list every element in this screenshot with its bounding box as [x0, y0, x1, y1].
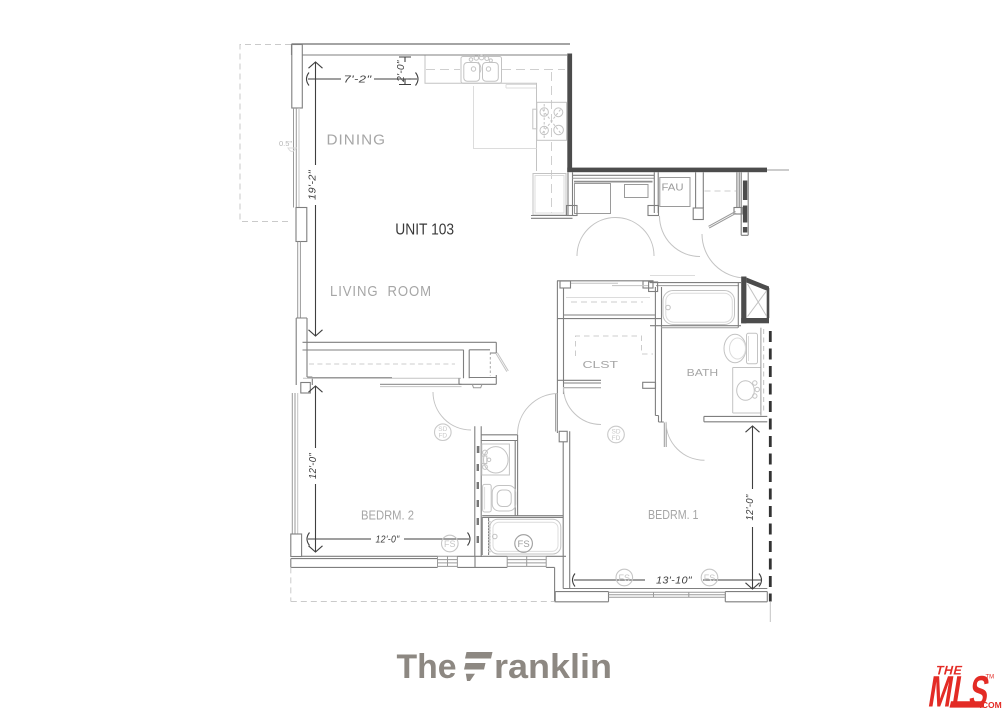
svg-text:.COM: .COM [980, 700, 1002, 710]
svg-text:FAU: FAU [662, 183, 684, 194]
svg-text:UNIT 103: UNIT 103 [395, 221, 454, 238]
svg-text:2'-0": 2'-0" [396, 60, 407, 83]
svg-text:CLST: CLST [583, 360, 619, 371]
svg-text:TM: TM [986, 675, 995, 681]
svg-text:13'-10": 13'-10" [656, 576, 692, 587]
svg-text:12'-0": 12'-0" [745, 494, 756, 520]
svg-text:FS: FS [619, 573, 631, 583]
svg-text:FD: FD [438, 433, 447, 440]
svg-text:The: The [397, 648, 457, 686]
svg-text:DINING: DINING [327, 132, 387, 149]
svg-text:BATH: BATH [687, 368, 719, 379]
svg-text:BEDRM. 2: BEDRM. 2 [361, 509, 414, 523]
svg-text:FS: FS [704, 573, 716, 583]
svg-text:19'-2": 19'-2" [308, 170, 319, 200]
svg-text:FS: FS [444, 539, 456, 549]
svg-text:FD: FD [612, 435, 621, 442]
svg-text:7'-2": 7'-2" [344, 75, 372, 86]
svg-text:12'-0": 12'-0" [308, 453, 319, 479]
svg-text:12'-0": 12'-0" [376, 535, 400, 546]
svg-text:BEDRM. 1: BEDRM. 1 [648, 508, 699, 522]
svg-text:FS: FS [518, 539, 530, 550]
svg-text:LIVING ROOM: LIVING ROOM [330, 284, 432, 300]
svg-text:0.5": 0.5" [279, 139, 292, 148]
svg-text:ranklin: ranklin [494, 648, 612, 686]
